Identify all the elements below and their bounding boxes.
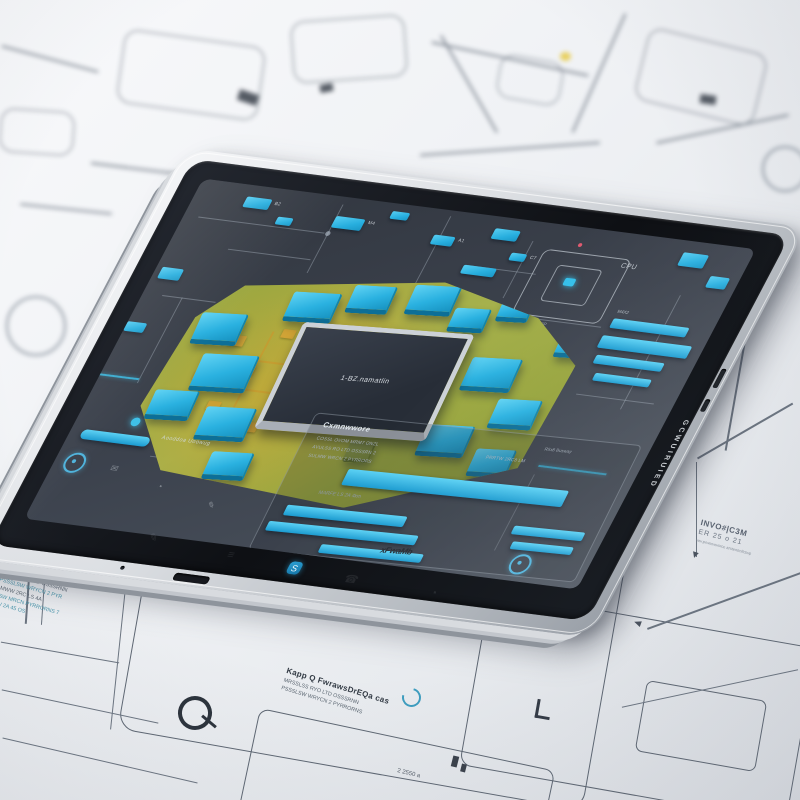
menu-icon [225, 549, 237, 561]
cpu-inner-outline [539, 265, 603, 307]
component-block [157, 267, 184, 281]
stack-bar [597, 335, 693, 359]
pencil-icon [204, 500, 217, 511]
stack-bar [592, 355, 664, 372]
component-block [123, 321, 147, 333]
component-block [705, 276, 730, 290]
component-block [242, 196, 273, 210]
pcb-chip [187, 353, 260, 394]
component-block [274, 217, 294, 227]
panel-progress-bar-large [341, 469, 569, 507]
circle-gauge-icon [427, 587, 439, 599]
s-badge-icon [285, 561, 304, 575]
status-dot-red [577, 243, 583, 247]
pcb-chip [552, 333, 595, 359]
blueprint-text-block-right: INVO#|C3M ER 25 o 21 ww.prwmwwsrce arste… [696, 518, 800, 569]
circle-badge-icon [59, 452, 90, 475]
panel-signature: xFwaMb [379, 545, 414, 557]
trace-node-cyan [129, 417, 142, 427]
component-label: C7 [529, 255, 538, 261]
cpu-block-outline [511, 249, 632, 325]
panel-progress-bar [511, 526, 586, 542]
stack-label: M4X2 [617, 309, 631, 315]
scene: ROOATERG.,00 PatastiArn NRRYSSLMS 2 OSW … [0, 0, 800, 800]
pcb-chip [486, 399, 543, 431]
component-label: A1 [457, 238, 466, 244]
blueprint-line [647, 568, 800, 629]
component-label: M4 [367, 220, 376, 226]
pcb-chip [458, 357, 523, 393]
pcb-chip [445, 308, 492, 334]
phone-icon [341, 572, 361, 586]
info-panel: Cxmnwwore R5x8 Busway COSSL OVOM MRM7 ON… [248, 412, 643, 582]
component-block [677, 252, 709, 269]
component-block [460, 265, 497, 278]
component-block [331, 216, 366, 231]
panel-meta: R5x8 Busway [543, 447, 572, 454]
pcb-chip [143, 389, 200, 421]
blueprint-line [1, 642, 119, 664]
component-block [429, 235, 455, 247]
trace-line [228, 249, 311, 260]
trace-line [162, 295, 216, 303]
pcb-chip [200, 451, 255, 481]
panel-text-line: SULMW WRCN 2 PYRRORS [307, 453, 373, 464]
blueprint-line [2, 738, 197, 784]
panel-text-line: PRRTW 2RC8 LM [485, 455, 527, 464]
arrowhead-icon [691, 551, 699, 559]
circle-gauge-icon [155, 481, 165, 491]
panel-title: Cxmnwwore [321, 420, 372, 433]
trace-line-cyan [100, 373, 140, 380]
component-block [389, 211, 410, 221]
panel-note: MARFE LS 2A 4km [317, 490, 362, 500]
pcb-chip [192, 406, 257, 442]
mail-icon [108, 463, 121, 474]
trace-line [307, 205, 344, 274]
stack-bar [609, 318, 690, 337]
pcb-chip [281, 291, 342, 323]
trace-line [576, 394, 654, 405]
component-block [490, 228, 521, 242]
stack-bar [592, 373, 652, 388]
main-chip-label: 1-BZ.namatlin [339, 375, 391, 385]
trace-line [198, 217, 325, 234]
trace-node [324, 231, 331, 236]
component-label: B2 [274, 201, 283, 207]
pcb-chip [344, 285, 399, 315]
gold-pad [280, 329, 297, 339]
component-block [508, 253, 528, 263]
cpu-die-icon [562, 278, 577, 287]
mic-hole [120, 566, 126, 570]
usb-port [172, 573, 211, 585]
toolbar-progress-bar [79, 429, 152, 447]
panel-progress-bar [509, 541, 574, 555]
